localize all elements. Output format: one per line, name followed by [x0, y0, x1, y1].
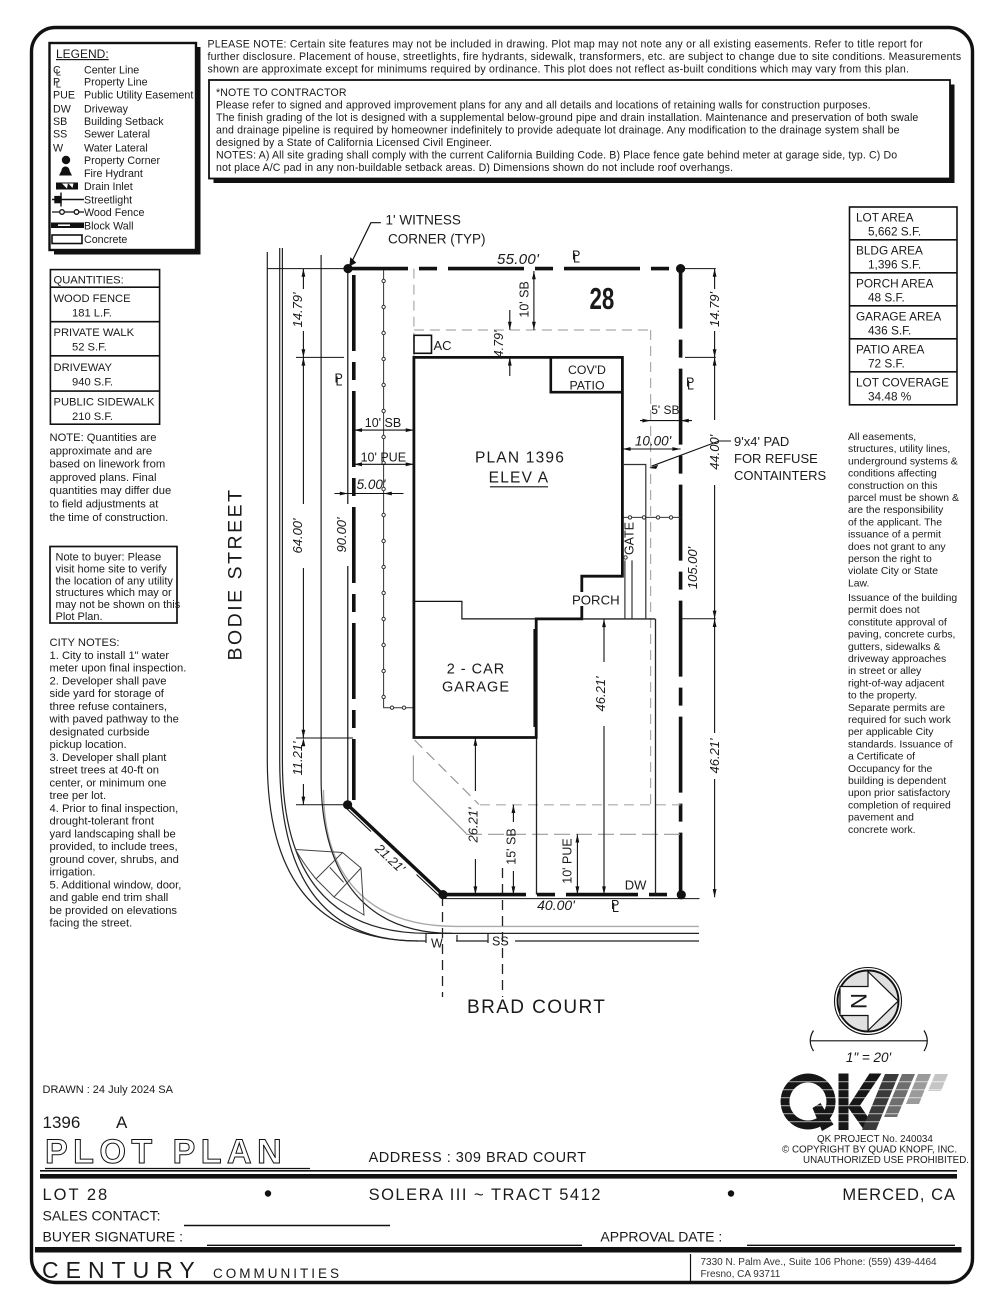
- svg-text:Block Wall: Block Wall: [84, 220, 134, 232]
- svg-text:5' SB: 5' SB: [651, 403, 679, 417]
- svg-text:Sewer Lateral: Sewer Lateral: [84, 128, 150, 140]
- svg-text:44.00': 44.00': [707, 434, 722, 470]
- svg-text:5. Additional window, door,: 5. Additional window, door,: [50, 879, 182, 891]
- svg-text:tree per lot.: tree per lot.: [50, 790, 107, 802]
- svg-text:CORNER (TYP): CORNER (TYP): [388, 232, 486, 247]
- svg-text:1. City to install 1" water: 1. City to install 1" water: [50, 650, 170, 662]
- svg-text:Driveway: Driveway: [84, 103, 129, 115]
- svg-text:PORCH: PORCH: [572, 593, 620, 608]
- svg-text:1396: 1396: [43, 1113, 81, 1132]
- svg-text:40.00': 40.00': [537, 897, 576, 913]
- svg-text:parcel must be shown &: parcel must be shown &: [848, 493, 959, 504]
- svg-text:gutters, sidewalks &: gutters, sidewalks &: [848, 642, 940, 653]
- svg-text:side yard for storage of: side yard for storage of: [50, 688, 165, 700]
- svg-text:driveway approaches: driveway approaches: [848, 654, 946, 665]
- svg-text:be provided on elevations: be provided on elevations: [50, 905, 178, 917]
- svg-text:CENTURY: CENTURY: [42, 1257, 202, 1283]
- svg-text:CITY NOTES:: CITY NOTES:: [50, 637, 120, 649]
- svg-text:ELEV A: ELEV A: [489, 470, 550, 487]
- svg-text:14.79': 14.79': [290, 292, 305, 328]
- svg-text:further disclosure. Placement: further disclosure. Placement of house, …: [208, 51, 962, 63]
- svg-text:Drain Inlet: Drain Inlet: [84, 181, 133, 193]
- svg-text:UNAUTHORIZED USE PROHIBITED.: UNAUTHORIZED USE PROHIBITED.: [803, 1155, 969, 1166]
- svg-text:210 S.F.: 210 S.F.: [72, 411, 113, 423]
- svg-text:PATIO AREA: PATIO AREA: [856, 343, 925, 357]
- svg-text:APPROVAL DATE :: APPROVAL DATE :: [600, 1229, 722, 1245]
- svg-text:2 - CAR: 2 - CAR: [447, 662, 506, 678]
- svg-text:approximate and are: approximate and are: [50, 445, 153, 457]
- svg-text:PATIO: PATIO: [569, 379, 604, 393]
- svg-text:SOLERA III ~ TRACT 5412: SOLERA III ~ TRACT 5412: [369, 1186, 602, 1204]
- svg-text:All easements,: All easements,: [848, 432, 916, 443]
- svg-text:Public Utility Easement: Public Utility Easement: [84, 90, 193, 102]
- svg-text:of the applicant. The: of the applicant. The: [848, 517, 942, 528]
- svg-text:are the responsibility: are the responsibility: [848, 505, 944, 516]
- svg-text:per applicable City: per applicable City: [848, 727, 934, 738]
- svg-text:SS: SS: [53, 128, 67, 140]
- svg-text:GATE: GATE: [623, 522, 637, 555]
- svg-text:designed by a State of Califor: designed by a State of California Licens…: [216, 137, 492, 149]
- svg-text:PUE: PUE: [53, 90, 75, 102]
- svg-text:DRIVEWAY: DRIVEWAY: [54, 362, 113, 374]
- svg-text:64.00': 64.00': [290, 518, 305, 554]
- svg-text:DW: DW: [625, 878, 647, 893]
- svg-text:SALES CONTACT:: SALES CONTACT:: [43, 1208, 161, 1224]
- svg-text:center, or minimum one: center, or minimum one: [50, 777, 167, 789]
- svg-text:meter upon final inspection.: meter upon final inspection.: [50, 663, 187, 675]
- svg-text:940 S.F.: 940 S.F.: [72, 377, 113, 389]
- svg-text:PLAN 1396: PLAN 1396: [475, 450, 565, 467]
- svg-text:PUBLIC SIDEWALK: PUBLIC SIDEWALK: [54, 397, 155, 409]
- svg-text:Property Corner: Property Corner: [84, 155, 160, 167]
- svg-text:required for such work: required for such work: [848, 715, 952, 726]
- svg-text:AC: AC: [434, 338, 452, 353]
- svg-text:Concrete: Concrete: [84, 234, 127, 246]
- svg-text:issuance of a permit: issuance of a permit: [848, 530, 941, 541]
- svg-text:to field adjustments at: to field adjustments at: [50, 499, 160, 511]
- svg-text:Water Lateral: Water Lateral: [84, 143, 148, 155]
- svg-text:underground systems &: underground systems &: [848, 456, 958, 467]
- svg-text:approved plans. Final: approved plans. Final: [50, 472, 157, 484]
- svg-text:5,662 S.F.: 5,662 S.F.: [868, 225, 921, 239]
- svg-text:N: N: [847, 993, 872, 1009]
- svg-text:W: W: [431, 937, 443, 951]
- svg-text:with paved pathway to the: with paved pathway to the: [49, 714, 179, 726]
- svg-text:NOTE: Quantities are: NOTE: Quantities are: [50, 432, 157, 444]
- svg-text:COMMUNITIES: COMMUNITIES: [213, 1266, 342, 1281]
- svg-text:LOT 28: LOT 28: [43, 1186, 110, 1204]
- svg-text:Wood Fence: Wood Fence: [84, 207, 144, 219]
- svg-text:based on linework from: based on linework from: [50, 459, 166, 471]
- svg-text:PLEASE NOTE: Certain site fea: PLEASE NOTE: Certain site features may n…: [208, 39, 924, 51]
- svg-text:10' SB: 10' SB: [518, 281, 532, 317]
- svg-text:10' PUE: 10' PUE: [561, 838, 575, 883]
- svg-text:designated curbside: designated curbside: [50, 726, 150, 738]
- svg-text:1' WITNESS: 1' WITNESS: [386, 213, 461, 228]
- svg-text:4. Prior to final inspection,: 4. Prior to final inspection,: [50, 803, 179, 815]
- svg-text:1,396 S.F.: 1,396 S.F.: [868, 258, 921, 272]
- svg-text:*NOTE TO CONTRACTOR: *NOTE TO CONTRACTOR: [216, 87, 347, 99]
- svg-text:person the right to: person the right to: [848, 554, 932, 565]
- svg-text:to the property.: to the property.: [848, 691, 917, 702]
- svg-text:and gable end trim shall: and gable end trim shall: [50, 892, 169, 904]
- svg-text:© COPYRIGHT BY QUAD KNOPF,: © COPYRIGHT BY QUAD KNOPF, INC.: [782, 1145, 957, 1156]
- svg-text:concrete work.: concrete work.: [848, 825, 916, 836]
- svg-text:structures which may or: structures which may or: [56, 587, 172, 599]
- svg-text:Separate permits are: Separate permits are: [848, 703, 945, 714]
- svg-text:building is dependent: building is dependent: [848, 776, 946, 787]
- svg-text:pavement and: pavement and: [848, 813, 914, 824]
- svg-text:and drainage pipeline is requi: and drainage pipeline is required by hom…: [216, 125, 900, 137]
- svg-text:436 S.F.: 436 S.F.: [868, 324, 911, 338]
- svg-text:10.00': 10.00': [635, 434, 672, 449]
- svg-text:Fresno, CA 93711: Fresno, CA 93711: [701, 1269, 781, 1280]
- svg-text:Note to buyer: Please: Note to buyer: Please: [56, 552, 162, 564]
- svg-text:Please refer to signed and app: Please refer to signed and approved impr…: [216, 100, 871, 112]
- svg-text:ground cover, shrubs, and: ground cover, shrubs, and: [50, 854, 179, 866]
- svg-text:10' SB: 10' SB: [365, 416, 401, 430]
- svg-text:Law.: Law.: [848, 578, 869, 589]
- svg-text:facing the street.: facing the street.: [50, 918, 133, 930]
- svg-text:DRAWN : 24 July 2024 SA: DRAWN : 24 July 2024 SA: [43, 1084, 174, 1096]
- svg-text:4.79': 4.79': [492, 330, 506, 357]
- svg-text:the time of construction.: the time of construction.: [50, 512, 169, 524]
- svg-text:14.79': 14.79': [707, 291, 722, 327]
- svg-text:shown are approximate except f: shown are approximate except for minimum…: [208, 64, 910, 76]
- svg-text:BUYER SIGNATURE :: BUYER SIGNATURE :: [43, 1229, 184, 1245]
- svg-text:Building Setback: Building Setback: [84, 116, 164, 128]
- svg-text:10' PUE: 10' PUE: [361, 451, 406, 465]
- svg-text:provided, to include trees,: provided, to include trees,: [50, 841, 178, 853]
- svg-text:BLDG AREA: BLDG AREA: [856, 244, 923, 258]
- svg-text:permit does not: permit does not: [848, 605, 920, 616]
- svg-text:construction on this: construction on this: [848, 481, 938, 492]
- svg-text:irrigation.: irrigation.: [50, 867, 96, 879]
- svg-text:standards. Issuance of: standards. Issuance of: [848, 739, 953, 750]
- svg-text:L: L: [336, 374, 343, 388]
- svg-text:L: L: [612, 901, 619, 915]
- svg-text:a Certificate of: a Certificate of: [848, 752, 915, 763]
- svg-text:BRAD COURT: BRAD COURT: [467, 997, 606, 1018]
- svg-text:52 S.F.: 52 S.F.: [72, 342, 107, 354]
- svg-text:Occupancy for the: Occupancy for the: [848, 764, 933, 775]
- svg-text:The finish grading of the lot: The finish grading of the lot is designe…: [216, 112, 918, 124]
- svg-text:11.21': 11.21': [290, 741, 305, 776]
- svg-text:DW: DW: [53, 103, 72, 115]
- svg-text:28: 28: [590, 281, 615, 315]
- svg-text:L: L: [573, 251, 580, 265]
- svg-text:quantities may differ due: quantities may differ due: [50, 485, 172, 497]
- svg-text:in street or alley: in street or alley: [848, 666, 922, 677]
- svg-text:SS: SS: [492, 935, 509, 949]
- svg-text:L: L: [687, 378, 694, 392]
- svg-text:Plot Plan.: Plot Plan.: [56, 611, 103, 623]
- svg-text:may not be shown on this: may not be shown on this: [56, 599, 181, 611]
- svg-text:3. Developer shall plant: 3. Developer shall plant: [50, 752, 168, 764]
- svg-text:A: A: [116, 1113, 128, 1132]
- svg-text:2. Developer shall pave: 2. Developer shall pave: [50, 675, 167, 687]
- svg-text:5.00': 5.00': [357, 477, 386, 492]
- svg-text:PORCH AREA: PORCH AREA: [856, 277, 933, 291]
- svg-text:9'x4' PAD: 9'x4' PAD: [734, 434, 789, 449]
- svg-text:does not grant to any: does not grant to any: [848, 542, 946, 553]
- svg-text:WOOD FENCE: WOOD FENCE: [54, 293, 131, 305]
- svg-text:48 S.F.: 48 S.F.: [868, 291, 905, 305]
- svg-text:QUANTITIES:: QUANTITIES:: [54, 275, 124, 287]
- svg-text:structures, utility lines,: structures, utility lines,: [848, 444, 950, 455]
- svg-text:55.00': 55.00': [497, 251, 540, 268]
- svg-text:26.21': 26.21': [466, 807, 481, 844]
- svg-text:COV'D: COV'D: [568, 363, 606, 377]
- svg-text:7330 N. Palm Ave., Suite 106: 7330 N. Palm Ave., Suite 106 Phone: (559…: [701, 1257, 938, 1268]
- svg-text:right-of-way adjacent: right-of-way adjacent: [848, 678, 945, 689]
- svg-text:FOR REFUSE: FOR REFUSE: [734, 451, 818, 466]
- svg-text:LOT COVERAGE: LOT COVERAGE: [856, 376, 949, 390]
- svg-text:Center Line: Center Line: [84, 65, 139, 77]
- svg-text:GARAGE: GARAGE: [442, 680, 510, 696]
- svg-text:CONTAINTERS: CONTAINTERS: [734, 468, 827, 483]
- svg-text:MERCED, CA: MERCED, CA: [842, 1186, 956, 1204]
- svg-text:completion of required: completion of required: [848, 800, 951, 811]
- svg-text:upon prior satisfactory: upon prior satisfactory: [848, 788, 951, 799]
- svg-text:the location of any utility: the location of any utility: [56, 575, 174, 587]
- svg-text:conditions affecting: conditions affecting: [848, 469, 937, 480]
- svg-text:QK PROJECT No. 240034: QK PROJECT No. 240034: [817, 1134, 933, 1145]
- svg-text:90.00': 90.00': [334, 517, 349, 553]
- svg-text:not place A/C pad in any non-b: not place A/C pad in any non-buildable s…: [216, 162, 733, 174]
- svg-text:violate City or State: violate City or State: [848, 566, 938, 577]
- svg-text:paving, concrete curbs,: paving, concrete curbs,: [848, 630, 955, 641]
- svg-text:BODIE STREET: BODIE STREET: [225, 487, 247, 660]
- svg-text:Issuance of the building: Issuance of the building: [848, 593, 957, 604]
- svg-text:LEGEND:: LEGEND:: [56, 47, 109, 61]
- svg-text:constitute approval of: constitute approval of: [848, 617, 947, 628]
- svg-text:46.21': 46.21': [593, 676, 608, 712]
- svg-text:three refuse containers,: three refuse containers,: [50, 701, 168, 713]
- svg-text:1" = 20': 1" = 20': [846, 1050, 892, 1065]
- svg-text:GARAGE AREA: GARAGE AREA: [856, 310, 941, 324]
- svg-text:SB: SB: [53, 116, 67, 128]
- svg-text:ADDRESS : 309 BRAD COURT: ADDRESS : 309 BRAD COURT: [369, 1150, 587, 1166]
- svg-text:street trees at 40-ft on: street trees at 40-ft on: [50, 765, 159, 777]
- svg-text:15' SB: 15' SB: [505, 828, 519, 864]
- svg-text:Property Line: Property Line: [84, 77, 148, 89]
- svg-text:72 S.F.: 72 S.F.: [868, 357, 905, 371]
- svg-text:181 L.F.: 181 L.F.: [72, 308, 112, 320]
- svg-text:34.48 %: 34.48 %: [868, 390, 912, 404]
- svg-text:Streetlight: Streetlight: [84, 195, 132, 207]
- svg-text:drought-tolerant front: drought-tolerant front: [50, 816, 155, 828]
- svg-text:yard landscaping shall be: yard landscaping shall be: [50, 828, 176, 840]
- svg-text:Fire Hydrant: Fire Hydrant: [84, 168, 143, 180]
- svg-text:W: W: [53, 143, 64, 155]
- svg-text:pickup location.: pickup location.: [50, 739, 127, 751]
- svg-text:105.00': 105.00': [685, 546, 700, 589]
- svg-text:PLOT PLAN: PLOT PLAN: [45, 1133, 287, 1171]
- svg-text:46.21': 46.21': [707, 738, 722, 774]
- svg-text:LOT AREA: LOT AREA: [856, 211, 914, 225]
- svg-text:PRIVATE WALK: PRIVATE WALK: [54, 327, 135, 339]
- svg-text:visit home site to verify: visit home site to verify: [56, 563, 168, 575]
- svg-text:NOTES: A) All site grading sh: NOTES: A) All site grading shall comply …: [216, 150, 897, 162]
